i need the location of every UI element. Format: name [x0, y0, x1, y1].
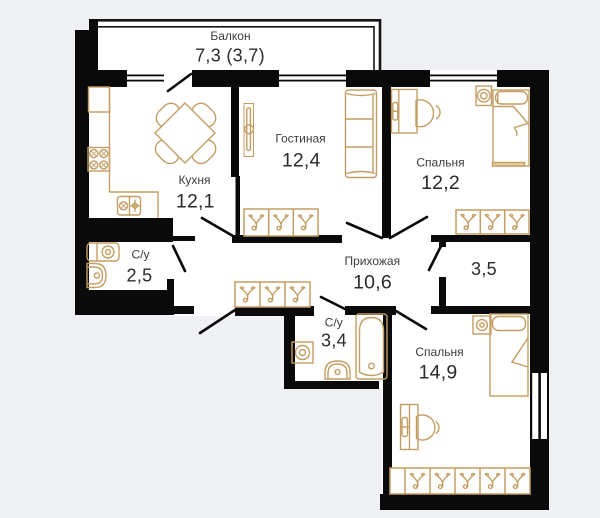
svg-text:7,3 (3,7): 7,3 (3,7)	[195, 46, 265, 66]
svg-text:3,5: 3,5	[471, 259, 497, 279]
svg-text:С/у: С/у	[132, 248, 150, 262]
svg-text:Кухня: Кухня	[178, 173, 210, 187]
svg-text:12,1: 12,1	[176, 191, 215, 213]
svg-text:12,4: 12,4	[282, 150, 321, 172]
svg-text:Прихожая: Прихожая	[344, 254, 400, 268]
svg-text:С/у: С/у	[325, 316, 343, 330]
svg-text:Балкон: Балкон	[210, 29, 250, 43]
svg-text:12,2: 12,2	[421, 172, 460, 194]
svg-text:3,4: 3,4	[321, 331, 347, 351]
svg-text:14,9: 14,9	[419, 362, 458, 384]
svg-text:Спальня: Спальня	[416, 156, 464, 170]
svg-text:2,5: 2,5	[127, 266, 153, 286]
svg-text:Гостиная: Гостиная	[275, 132, 325, 146]
svg-text:10,6: 10,6	[353, 272, 392, 294]
svg-text:Спальня: Спальня	[415, 345, 463, 359]
